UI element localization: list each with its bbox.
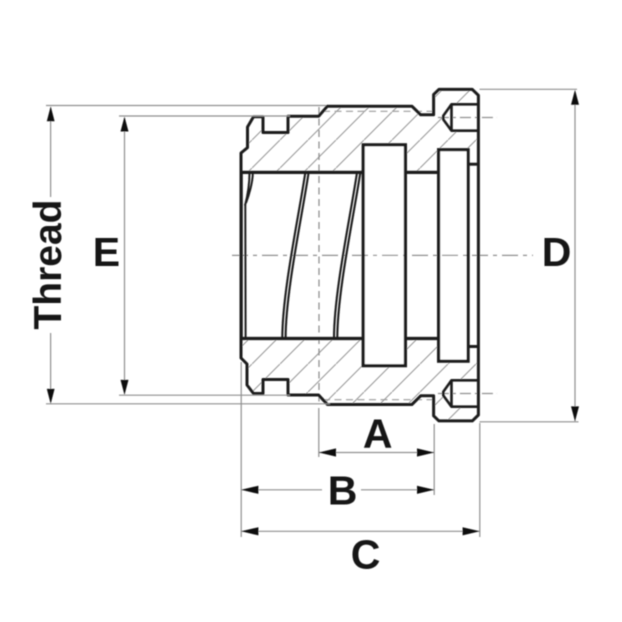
svg-text:D: D [542,229,572,275]
svg-text:B: B [328,468,358,514]
svg-text:Thread: Thread [27,199,70,329]
svg-text:C: C [351,532,381,578]
svg-text:A: A [363,411,393,457]
svg-text:E: E [93,229,120,275]
